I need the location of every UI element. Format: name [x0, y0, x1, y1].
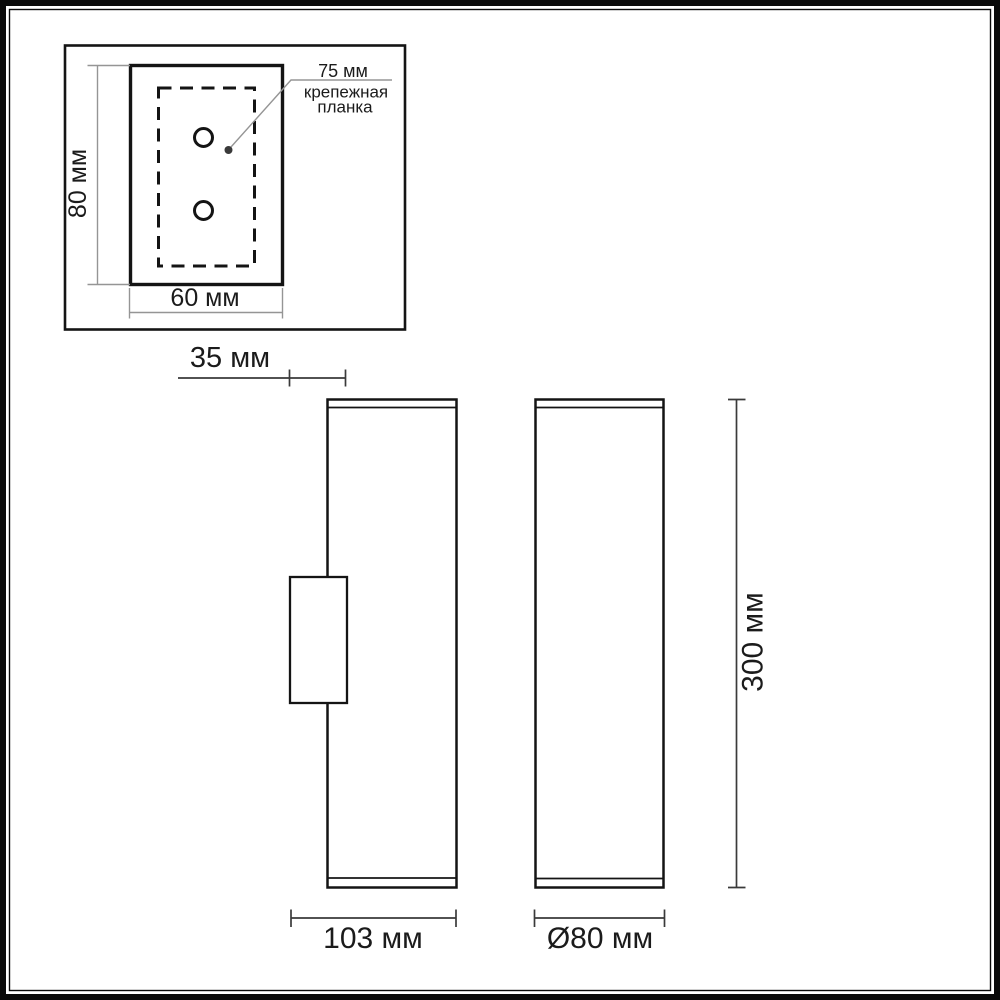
mounting-hole-top: [195, 129, 213, 147]
dim-diameter: Ø80 мм: [535, 910, 665, 956]
callout-dimension-label: 75 мм: [318, 61, 368, 81]
dim-overall-depth: 103 мм: [291, 910, 456, 956]
frame-outer-border: [3, 3, 997, 997]
mounting-hole-bottom: [195, 202, 213, 220]
dim-plate-height: 80 мм: [64, 66, 130, 285]
dim-plate-width: 60 мм: [130, 284, 283, 319]
callout-label-line2: планка: [317, 98, 373, 117]
dim-height-label: 300 мм: [737, 592, 770, 692]
mounting-plate-outline: [131, 66, 283, 285]
dim-diameter-label: Ø80 мм: [547, 922, 653, 955]
callout-leader-dot: [225, 146, 233, 154]
dim-bracket-depth-label: 35 мм: [190, 342, 270, 374]
dimension-drawing-canvas: 75 мм крепежная планка 80 мм 60 мм: [0, 0, 1000, 1000]
dim-overall-depth-label: 103 мм: [323, 922, 423, 955]
mounting-plate-inset-panel: 75 мм крепежная планка 80 мм 60 мм: [64, 46, 405, 330]
dim-plate-height-label: 80 мм: [64, 149, 92, 218]
dim-height: 300 мм: [728, 400, 770, 888]
frame-inner-border: [10, 10, 991, 991]
wall-bracket: [290, 577, 347, 703]
lamp-side-view: 35 мм 103 мм: [178, 342, 457, 955]
lamp-front-view: Ø80 мм 300 мм: [535, 400, 770, 956]
dim-bracket-depth: 35 мм: [178, 342, 346, 387]
lamp-front-body: [536, 400, 664, 888]
dimension-drawing: 75 мм крепежная планка 80 мм 60 мм: [0, 0, 1000, 1000]
dim-plate-width-label: 60 мм: [170, 284, 239, 312]
mounting-plate-dashed-outline: [159, 88, 255, 266]
